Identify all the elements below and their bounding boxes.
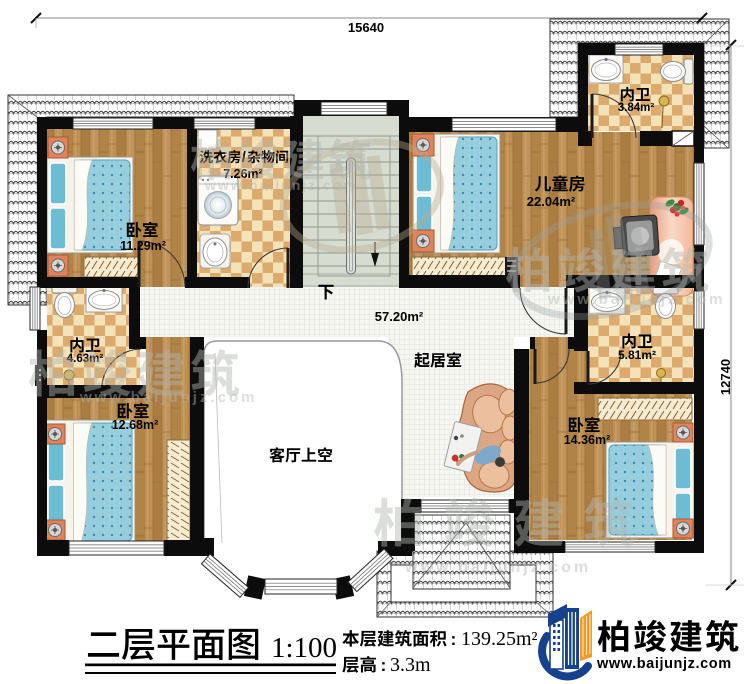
svg-text::: : — [451, 629, 457, 649]
svg-text:11.29m²: 11.29m² — [120, 239, 166, 253]
svg-text:12740: 12740 — [718, 359, 733, 395]
svg-text:57.20m²: 57.20m² — [375, 309, 424, 324]
svg-text:www.baijunjz.com: www.baijunjz.com — [547, 291, 725, 308]
svg-text:3.84m²: 3.84m² — [618, 102, 655, 114]
svg-text:www.baijunjz.com: www.baijunjz.com — [204, 177, 358, 193]
svg-text:12.68m²: 12.68m² — [112, 418, 159, 432]
svg-text:3.3m: 3.3m — [390, 654, 431, 676]
svg-text:22.04m²: 22.04m² — [527, 194, 576, 209]
svg-text:www.baijunjz.com: www.baijunjz.com — [79, 389, 257, 406]
svg-text:1:100: 1:100 — [271, 632, 337, 664]
svg-text::: : — [381, 655, 387, 675]
svg-text:www.baijunjz.com: www.baijunjz.com — [596, 656, 732, 672]
svg-text:www.baijunjz.com: www.baijunjz.com — [404, 559, 591, 576]
svg-text:5.81m²: 5.81m² — [618, 348, 656, 362]
svg-text:15640: 15640 — [348, 20, 384, 35]
svg-text:139.25m²: 139.25m² — [461, 628, 538, 650]
svg-text:14.36m²: 14.36m² — [564, 433, 611, 447]
